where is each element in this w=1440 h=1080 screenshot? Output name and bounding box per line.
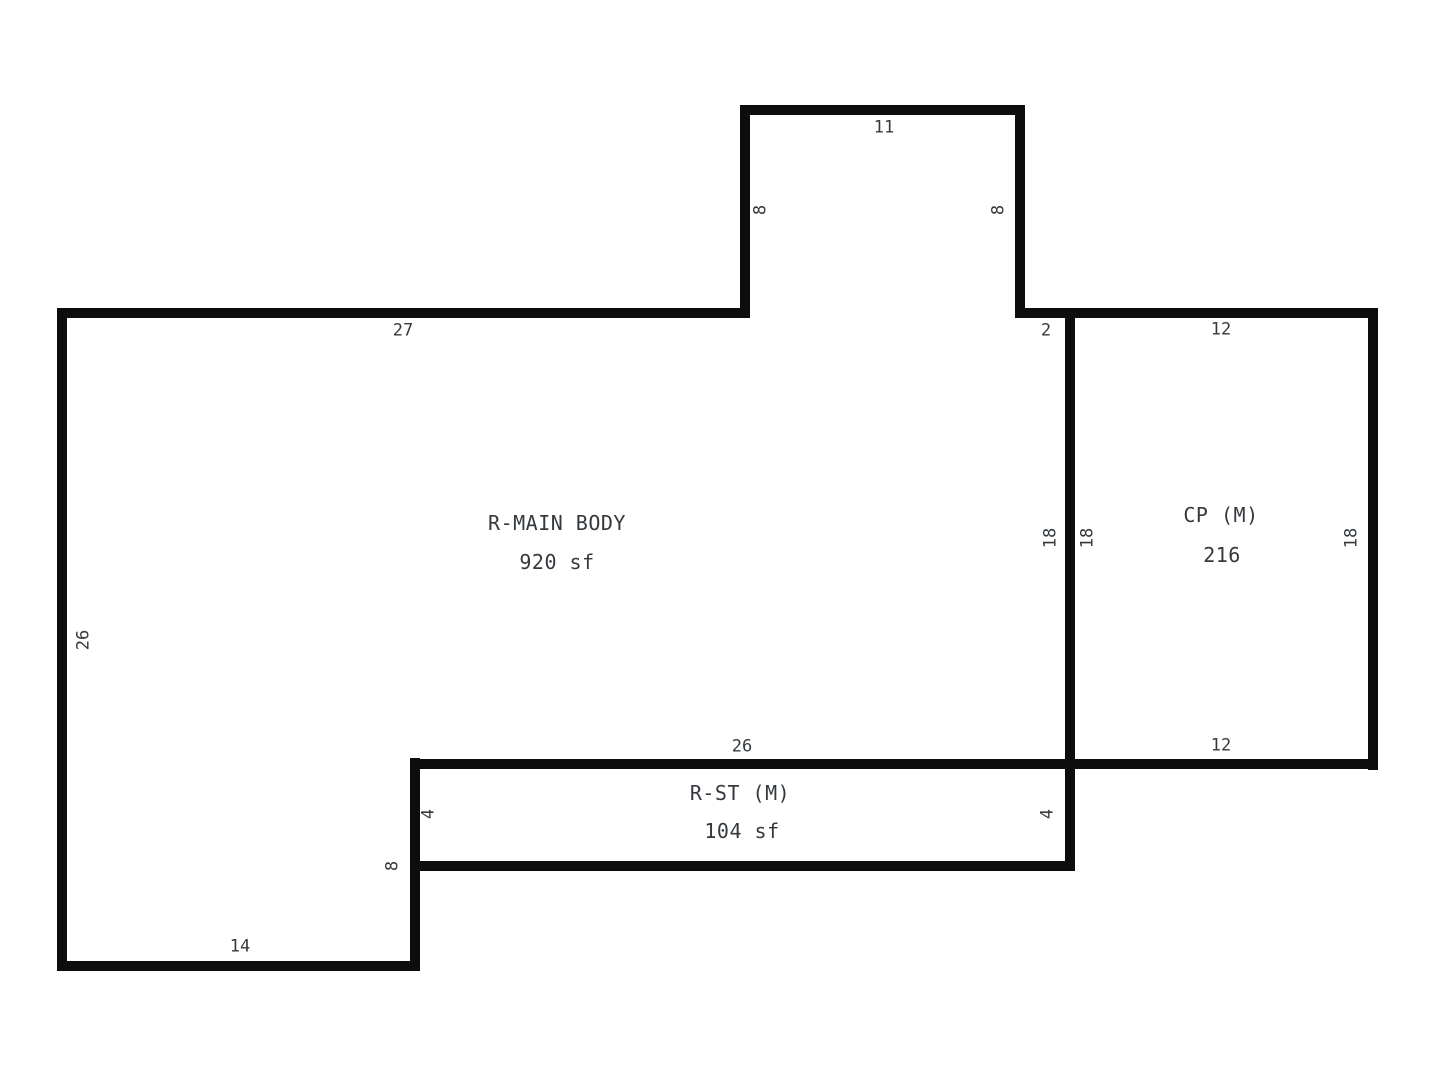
dim-main-left: 26 <box>76 630 93 650</box>
dim-carport-left: 18 <box>1080 528 1097 548</box>
dim-main-right: 18 <box>1043 528 1060 548</box>
wall-bump-right <box>1015 105 1025 318</box>
dim-carport-bottom: 12 <box>1211 738 1231 755</box>
dim-storage-outer-wall: 8 <box>385 861 402 871</box>
main-body-size: 920 sf <box>519 552 594 572</box>
wall-storage-top-carport-bottom <box>410 759 1378 769</box>
wall-leg-bottom <box>57 961 420 971</box>
dim-bump-left: 8 <box>753 205 770 215</box>
wall-bump-left <box>740 105 750 318</box>
wall-carport-right <box>1368 308 1378 770</box>
carport-size: 216 <box>1203 545 1241 565</box>
carport-name: CP (M) <box>1183 505 1258 525</box>
wall-storage-bottom <box>410 861 1075 871</box>
wall-shared-main-carport <box>1065 308 1075 871</box>
storage-name: R-ST (M) <box>690 783 790 803</box>
wall-main-left <box>57 308 67 971</box>
floor-plan-sketch: 11 8 8 27 2 12 18 18 18 26 26 12 4 4 8 1… <box>0 0 1440 1080</box>
dim-carport-top: 12 <box>1211 322 1231 339</box>
storage-size: 104 sf <box>704 821 779 841</box>
dim-bump-right: 8 <box>991 205 1008 215</box>
main-body-name: R-MAIN BODY <box>488 513 626 533</box>
dim-main-top-offset: 2 <box>1041 323 1051 340</box>
dim-storage-top: 26 <box>732 739 752 756</box>
dim-storage-left: 4 <box>421 809 438 819</box>
dim-main-top: 27 <box>393 323 413 340</box>
dim-carport-right: 18 <box>1344 528 1361 548</box>
dim-leg-bottom: 14 <box>230 939 250 956</box>
dim-storage-right: 4 <box>1040 809 1057 819</box>
dim-bump-top: 11 <box>874 120 894 137</box>
wall-main-top <box>57 308 750 318</box>
wall-bump-top <box>740 105 1025 115</box>
